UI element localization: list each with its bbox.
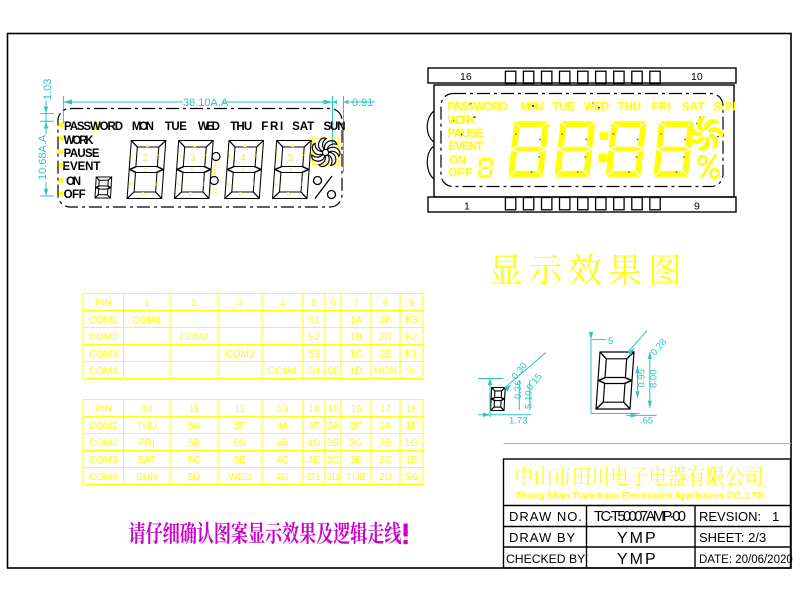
svg-text:PIN: PIN xyxy=(95,298,112,309)
svg-text:B: B xyxy=(254,154,258,160)
svg-text:F: F xyxy=(178,154,182,160)
svg-text:0.36: 0.36 xyxy=(513,381,524,400)
svg-text:5C: 5C xyxy=(188,455,201,466)
svg-text:16: 16 xyxy=(460,71,472,83)
svg-text:3C: 3C xyxy=(327,455,340,466)
svg-text:3F: 3F xyxy=(350,421,362,432)
svg-text:DATE: 20/06/2020: DATE: 20/06/2020 xyxy=(699,554,793,566)
svg-text:COM2: COM2 xyxy=(180,332,209,343)
svg-text:TUE: TUE xyxy=(165,121,187,133)
svg-text:PASSWORD: PASSWORD xyxy=(64,121,123,133)
svg-text:D: D xyxy=(189,192,193,198)
svg-text:5G: 5G xyxy=(233,438,247,449)
svg-text:COM1: COM1 xyxy=(89,421,118,432)
svg-text:2B: 2B xyxy=(379,438,392,449)
svg-text:1D: 1D xyxy=(350,366,363,377)
svg-text:D: D xyxy=(287,192,291,198)
svg-text:5: 5 xyxy=(608,336,613,347)
svg-text:10.68A.A: 10.68A.A xyxy=(37,134,49,180)
svg-text:G: G xyxy=(289,168,293,174)
svg-text:G: G xyxy=(143,168,147,174)
svg-text:16: 16 xyxy=(350,404,362,415)
svg-text:COM1: COM1 xyxy=(89,315,118,326)
svg-text:E: E xyxy=(177,182,181,188)
svg-text:2D: 2D xyxy=(379,472,392,483)
svg-text:A: A xyxy=(193,144,197,150)
svg-text:ON: ON xyxy=(66,176,81,188)
svg-text:WED: WED xyxy=(228,472,251,483)
svg-text:TUE: TUE xyxy=(346,472,366,483)
svg-text:5E: 5E xyxy=(234,455,247,466)
svg-text:COM4: COM4 xyxy=(89,472,118,483)
svg-text:SAT: SAT xyxy=(137,455,156,466)
svg-text:0.28: 0.28 xyxy=(649,337,669,358)
svg-text:1B: 1B xyxy=(350,332,363,343)
svg-text:4B: 4B xyxy=(276,438,289,449)
svg-text:4C: 4C xyxy=(276,455,289,466)
svg-text:EVENT: EVENT xyxy=(62,161,100,173)
svg-text:B: B xyxy=(302,154,306,160)
svg-text:1G: 1G xyxy=(405,438,419,449)
svg-text:3D: 3D xyxy=(327,472,340,483)
svg-text:DRAW NO.: DRAW NO. xyxy=(509,509,583,524)
svg-text:2A: 2A xyxy=(379,421,392,432)
svg-text:0.15: 0.15 xyxy=(525,371,545,392)
svg-text:E: E xyxy=(227,182,231,188)
svg-text:S3: S3 xyxy=(308,349,321,360)
svg-text:F: F xyxy=(276,154,280,160)
svg-text:S6: S6 xyxy=(405,472,418,483)
svg-text:SUN: SUN xyxy=(136,472,157,483)
svg-text:WORK: WORK xyxy=(64,135,95,147)
svg-text:4: 4 xyxy=(240,153,246,164)
svg-text:3: 3 xyxy=(237,298,243,309)
svg-text:3A: 3A xyxy=(327,421,340,432)
svg-text:TUE: TUE xyxy=(552,102,575,114)
svg-text:12: 12 xyxy=(234,404,246,415)
svg-text:15: 15 xyxy=(327,404,339,415)
svg-text:K2: K2 xyxy=(405,332,418,343)
svg-text:0.91: 0.91 xyxy=(352,97,373,109)
svg-text:5A: 5A xyxy=(188,421,201,432)
svg-text:D: D xyxy=(239,192,243,198)
svg-text:S1: S1 xyxy=(308,315,321,326)
svg-text:14: 14 xyxy=(308,404,320,415)
svg-text:4: 4 xyxy=(280,298,286,309)
svg-text:9: 9 xyxy=(409,298,415,309)
svg-text:11: 11 xyxy=(189,404,200,415)
svg-text:COM3: COM3 xyxy=(89,349,118,360)
svg-text:0.30: 0.30 xyxy=(510,360,530,381)
svg-text:10: 10 xyxy=(141,404,153,415)
svg-text:MON: MON xyxy=(520,102,543,114)
svg-text:1: 1 xyxy=(464,201,470,213)
svg-text:COM3: COM3 xyxy=(89,455,118,466)
svg-text:8.00: 8.00 xyxy=(649,370,660,389)
svg-text:1.03: 1.03 xyxy=(42,79,54,100)
svg-text:2E: 2E xyxy=(379,349,392,360)
svg-text:3B: 3B xyxy=(327,438,340,449)
svg-text:SUN: SUN xyxy=(713,102,736,114)
svg-text:FRI: FRI xyxy=(652,102,671,114)
svg-text:B: B xyxy=(204,154,208,160)
svg-text:THU: THU xyxy=(136,421,157,432)
svg-text:F: F xyxy=(130,154,134,160)
svg-text:Zhong Shan Tianchuan Electroni: Zhong Shan Tianchuan Electronics Applian… xyxy=(516,491,766,501)
svg-text:8: 8 xyxy=(383,298,389,309)
svg-text:9: 9 xyxy=(694,201,700,213)
svg-text:COM3: COM3 xyxy=(226,349,255,360)
svg-text:1: 1 xyxy=(144,298,150,309)
svg-text:DRAW BY: DRAW BY xyxy=(509,530,576,545)
svg-text:PASSWORD: PASSWORD xyxy=(448,102,508,114)
svg-text:.65: .65 xyxy=(640,416,653,427)
svg-text:5B: 5B xyxy=(188,438,201,449)
svg-text:1F: 1F xyxy=(406,421,418,432)
svg-text:3E: 3E xyxy=(350,455,363,466)
svg-text:3G: 3G xyxy=(349,438,363,449)
svg-text:YMP: YMP xyxy=(617,551,658,568)
svg-text:K1: K1 xyxy=(405,349,418,360)
svg-text:A: A xyxy=(291,144,295,150)
svg-text:YMP: YMP xyxy=(617,530,658,547)
svg-text:%: % xyxy=(407,366,416,377)
svg-text:COM1: COM1 xyxy=(132,315,161,326)
svg-text:PAUSE: PAUSE xyxy=(448,128,484,140)
svg-text:2: 2 xyxy=(143,153,149,164)
svg-text:SHEET: 2/3: SHEET: 2/3 xyxy=(699,530,766,545)
svg-text:10: 10 xyxy=(691,71,703,83)
svg-text:B: B xyxy=(156,154,160,160)
svg-text:17: 17 xyxy=(380,404,392,415)
svg-text:0.95: 0.95 xyxy=(637,369,648,388)
svg-text:WED: WED xyxy=(198,121,220,133)
svg-text:G: G xyxy=(191,168,195,174)
svg-text:3: 3 xyxy=(190,153,196,164)
svg-text:A: A xyxy=(145,144,149,150)
svg-text:5D: 5D xyxy=(188,472,201,483)
svg-text:SAT: SAT xyxy=(682,102,705,114)
svg-text:38.10A.A: 38.10A.A xyxy=(183,97,229,109)
svg-text:CHECKED BY: CHECKED BY xyxy=(506,552,585,566)
svg-text:7: 7 xyxy=(353,298,359,309)
svg-text:4E: 4E xyxy=(308,455,321,466)
svg-text:2F: 2F xyxy=(380,315,392,326)
svg-text:C: C xyxy=(301,182,305,188)
svg-text:D1: D1 xyxy=(308,472,321,483)
svg-text:COM4: COM4 xyxy=(89,366,118,377)
svg-text:D: D xyxy=(141,192,145,198)
svg-text:E: E xyxy=(275,182,279,188)
svg-text:D1: D1 xyxy=(210,189,218,195)
svg-text:2C: 2C xyxy=(379,455,392,466)
svg-text:4F: 4F xyxy=(308,421,320,432)
svg-text:1.73: 1.73 xyxy=(509,416,528,427)
svg-text:PIN: PIN xyxy=(95,404,112,415)
svg-text:SAT: SAT xyxy=(292,121,314,133)
svg-text:F: F xyxy=(228,154,232,160)
svg-text:MON: MON xyxy=(132,121,154,133)
svg-text:C: C xyxy=(253,182,257,188)
svg-text:EVENT: EVENT xyxy=(448,141,483,153)
svg-text:THU: THU xyxy=(230,121,252,133)
svg-text:6: 6 xyxy=(330,298,336,309)
svg-text:18: 18 xyxy=(406,404,418,415)
svg-text:THU: THU xyxy=(618,102,641,114)
svg-text:2G: 2G xyxy=(379,332,393,343)
svg-text:5: 5 xyxy=(311,298,317,309)
svg-text:SUN: SUN xyxy=(324,121,346,133)
svg-text:S4: S4 xyxy=(308,366,321,377)
svg-text:4G: 4G xyxy=(307,438,321,449)
svg-text:13: 13 xyxy=(277,404,289,415)
svg-text:COM2: COM2 xyxy=(89,332,118,343)
svg-text:1C: 1C xyxy=(350,349,363,360)
svg-text:ON: ON xyxy=(449,155,466,167)
svg-text:4D: 4D xyxy=(276,472,289,483)
svg-text:C: C xyxy=(155,182,159,188)
svg-text:OFF: OFF xyxy=(64,189,86,201)
svg-text:S2: S2 xyxy=(308,332,321,343)
svg-text:4A: 4A xyxy=(276,421,289,432)
svg-text:COM2: COM2 xyxy=(89,438,118,449)
svg-text:TC-T50007AMP-00: TC-T50007AMP-00 xyxy=(594,509,686,525)
svg-text:1: 1 xyxy=(772,509,779,524)
svg-text:COM4: COM4 xyxy=(268,366,297,377)
svg-text:E: E xyxy=(129,182,133,188)
svg-text:REVSION:: REVSION: xyxy=(699,509,761,524)
svg-text:C: C xyxy=(203,182,207,188)
svg-text:FRI: FRI xyxy=(139,438,155,449)
svg-text:WORK: WORK xyxy=(448,115,477,127)
svg-text:S5: S5 xyxy=(327,366,340,377)
svg-text:2: 2 xyxy=(191,298,197,309)
svg-text:5: 5 xyxy=(288,153,294,164)
svg-text:MON: MON xyxy=(374,366,397,377)
svg-text:5F: 5F xyxy=(234,421,246,432)
svg-text:PAUSE: PAUSE xyxy=(64,148,100,160)
svg-text:OFF: OFF xyxy=(448,168,472,180)
svg-text:G: G xyxy=(241,168,245,174)
svg-text:K3: K3 xyxy=(405,315,418,326)
svg-text:WED: WED xyxy=(584,102,609,114)
svg-text:1A: 1A xyxy=(350,315,363,326)
svg-text:FRI: FRI xyxy=(261,121,283,133)
svg-text:A: A xyxy=(243,144,247,150)
svg-text:1E: 1E xyxy=(405,455,418,466)
